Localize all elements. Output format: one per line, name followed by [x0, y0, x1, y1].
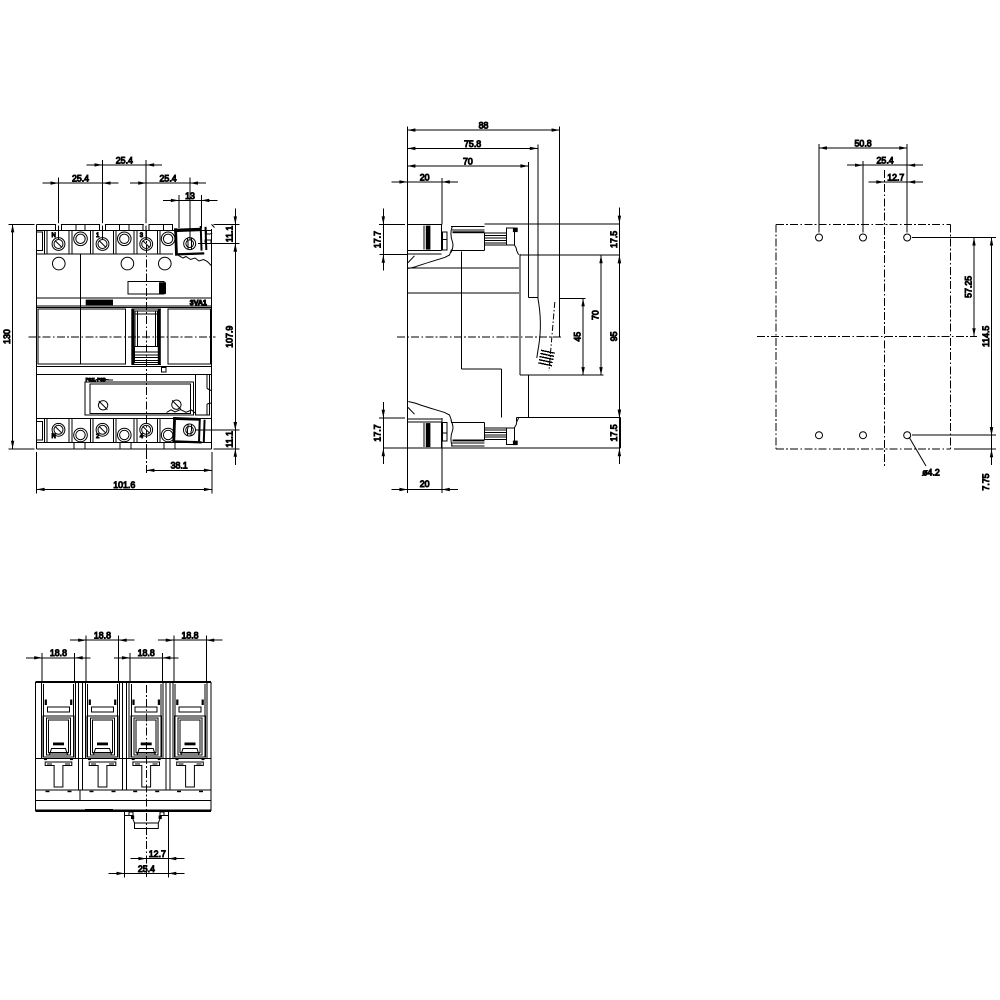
svg-text:12.7: 12.7: [149, 849, 166, 859]
svg-text:18.8: 18.8: [50, 648, 67, 658]
svg-text:25.4: 25.4: [72, 174, 89, 184]
svg-text:17.7: 17.7: [373, 424, 383, 441]
svg-text:17.5: 17.5: [609, 231, 619, 248]
svg-text:13: 13: [185, 191, 195, 201]
svg-text:20: 20: [420, 479, 430, 489]
svg-text:17.5: 17.5: [609, 424, 619, 441]
svg-text:4: 4: [140, 434, 144, 440]
svg-text:107.9: 107.9: [225, 326, 235, 348]
svg-text:12.7: 12.7: [887, 172, 904, 182]
svg-text:18.8: 18.8: [181, 631, 198, 641]
svg-text:114.5: 114.5: [981, 326, 991, 347]
svg-text:130: 130: [2, 329, 12, 344]
svg-text:11.1: 11.1: [225, 226, 235, 243]
svg-text:18.8: 18.8: [94, 631, 111, 641]
svg-text:57.25: 57.25: [963, 276, 973, 298]
svg-text:N: N: [52, 434, 56, 440]
svg-text:25.4: 25.4: [877, 156, 894, 166]
svg-text:25.4: 25.4: [138, 864, 155, 874]
svg-text:88: 88: [479, 121, 489, 131]
svg-text:25.4: 25.4: [160, 174, 177, 184]
svg-text:11.1: 11.1: [225, 431, 235, 448]
svg-text:17.7: 17.7: [373, 231, 383, 248]
svg-text:45: 45: [573, 332, 583, 342]
svg-text:70: 70: [590, 310, 600, 320]
svg-text:25.4: 25.4: [116, 155, 133, 165]
svg-text:N: N: [52, 233, 56, 239]
svg-text:ø4.2: ø4.2: [922, 468, 940, 478]
svg-text:2: 2: [96, 434, 100, 440]
svg-text:50.8: 50.8: [855, 138, 872, 148]
svg-text:18.8: 18.8: [138, 648, 155, 658]
svg-text:38.1: 38.1: [171, 461, 188, 471]
svg-text:101.6: 101.6: [113, 480, 135, 490]
svg-text:95: 95: [609, 331, 619, 341]
svg-text:70: 70: [463, 156, 473, 166]
svg-text:20: 20: [420, 172, 430, 182]
svg-text:75.8: 75.8: [464, 139, 481, 149]
svg-text:7.75: 7.75: [981, 473, 991, 490]
